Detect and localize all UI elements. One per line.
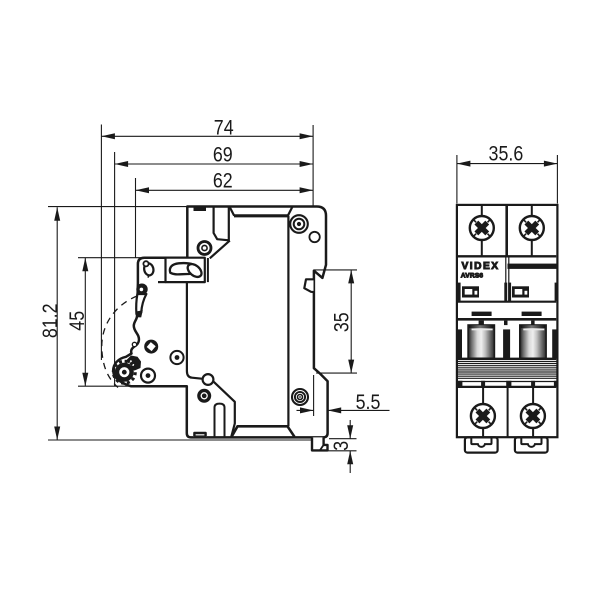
svg-text:35: 35 <box>330 312 354 332</box>
svg-text:81.2: 81.2 <box>39 303 63 338</box>
svg-text:35.6: 35.6 <box>489 142 524 166</box>
svg-text:5.5: 5.5 <box>356 390 381 414</box>
svg-text:74: 74 <box>214 116 234 140</box>
svg-text:45: 45 <box>66 311 90 331</box>
svg-text:VIDEX: VIDEX <box>462 261 500 272</box>
svg-text:62: 62 <box>213 169 233 193</box>
svg-text:3: 3 <box>330 441 354 451</box>
svg-text:AVRS6: AVRS6 <box>461 272 484 279</box>
svg-text:69: 69 <box>213 143 233 167</box>
